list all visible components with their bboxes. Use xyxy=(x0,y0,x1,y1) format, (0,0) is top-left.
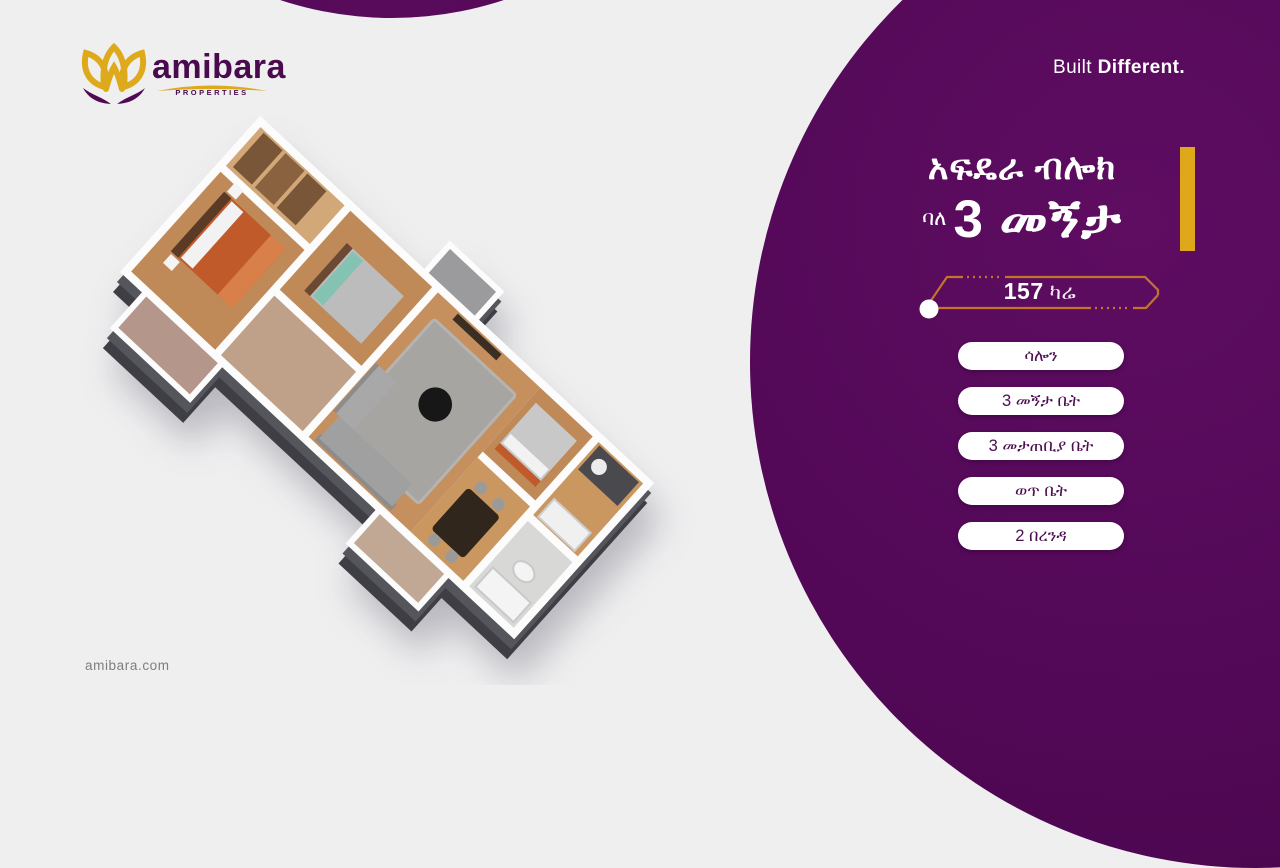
block-title: አፍዴራ ብሎክ xyxy=(878,146,1166,190)
slogan-regular: Built xyxy=(1053,57,1098,78)
area-unit: ካሬ xyxy=(1050,281,1077,304)
area-badge-text: 157ካሬ xyxy=(905,278,1175,305)
gold-accent-bar xyxy=(1180,147,1195,251)
floor-plan-3d xyxy=(50,85,710,685)
feature-pill-bathrooms: 3 መታጠቢያ ቤት xyxy=(958,432,1124,460)
unit-prefix: ባለ xyxy=(922,207,946,230)
feature-pill-bedrooms: 3 መኝታ ቤት xyxy=(958,387,1124,415)
poster-canvas: { "brand": { "name": "amibara", "tagline… xyxy=(0,0,1280,720)
area-value: 157 xyxy=(1004,278,1044,304)
feature-pill-living-room: ሳሎን xyxy=(958,342,1124,370)
feature-pill-balconies: 2 በረንዳ xyxy=(958,522,1124,550)
listing-title-block: አፍዴራ ብሎክ ባለ3 መኝታ xyxy=(878,146,1166,262)
brand-wordmark: amibara xyxy=(152,48,286,87)
top-purple-circle xyxy=(35,0,749,18)
slogan: Built Different. xyxy=(1053,57,1185,79)
unit-title-line: ባለ3 መኝታ xyxy=(878,190,1166,262)
unit-title: 3 መኝታ xyxy=(953,190,1121,249)
feature-pill-kitchen: ወጥ ቤት xyxy=(958,477,1124,505)
slogan-bold: Different. xyxy=(1098,57,1185,78)
